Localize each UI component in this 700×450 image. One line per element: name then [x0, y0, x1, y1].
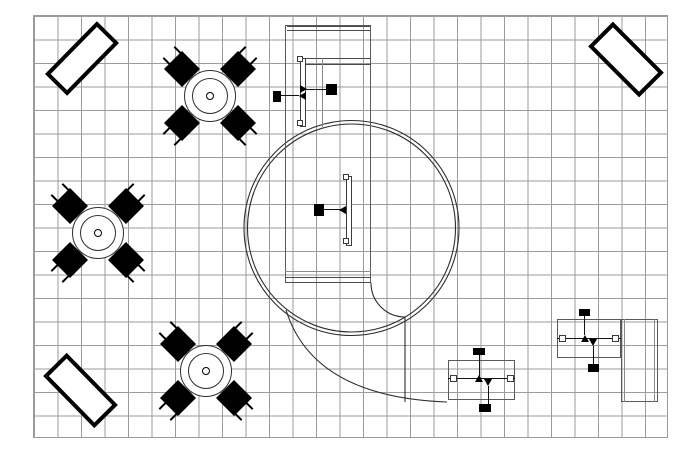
desk-end-clip — [612, 335, 619, 342]
round-table-set — [38, 173, 158, 293]
table-end-clip — [343, 174, 349, 180]
table-center-dot — [206, 92, 214, 100]
counter-shelf-band — [300, 58, 371, 65]
table-end-clip — [297, 120, 303, 126]
chair-link-line — [479, 355, 480, 376]
chair-link-line — [281, 95, 299, 96]
side-return-inner-line — [654, 319, 655, 402]
ramp-arc-path — [371, 283, 405, 402]
round-table-set — [146, 311, 266, 431]
desk-end-clip — [507, 375, 514, 382]
counter-chair-left — [273, 91, 281, 102]
chair-direction-marker — [475, 375, 483, 382]
chair-direction-marker — [339, 206, 346, 214]
desk-end-clip — [559, 335, 566, 342]
table-center-dot — [202, 367, 210, 375]
chair-direction-marker — [299, 92, 306, 100]
counter-chair-right — [326, 84, 337, 95]
desk-chair — [579, 309, 590, 316]
counter-bottom-line — [285, 271, 371, 272]
round-table-set — [150, 36, 270, 156]
rotunda-desk-table — [346, 176, 352, 246]
desk-chair — [479, 404, 491, 412]
chair-link-line — [306, 89, 326, 90]
table-center-dot — [94, 229, 102, 237]
side-return-unit — [621, 319, 658, 402]
chair-link-line — [488, 386, 489, 404]
side-return-inner-line — [624, 319, 625, 402]
desk-chair — [473, 348, 485, 355]
chair-direction-marker — [581, 335, 589, 342]
chair-link-line — [593, 346, 594, 364]
counter-top-strip — [287, 26, 370, 31]
table-end-clip — [297, 56, 303, 62]
counter-divider-line — [322, 58, 323, 127]
counter-bottom-strip — [285, 277, 371, 283]
chair-direction-marker — [484, 379, 492, 386]
chair-link-line — [584, 316, 585, 335]
chair-direction-marker — [300, 85, 307, 93]
table-end-clip — [343, 238, 349, 244]
desk-chair — [588, 364, 599, 372]
rotunda-desk-chair — [314, 204, 324, 216]
chair-direction-marker — [589, 339, 597, 346]
floor-plan-canvas — [0, 0, 700, 450]
desk-end-clip — [450, 375, 457, 382]
